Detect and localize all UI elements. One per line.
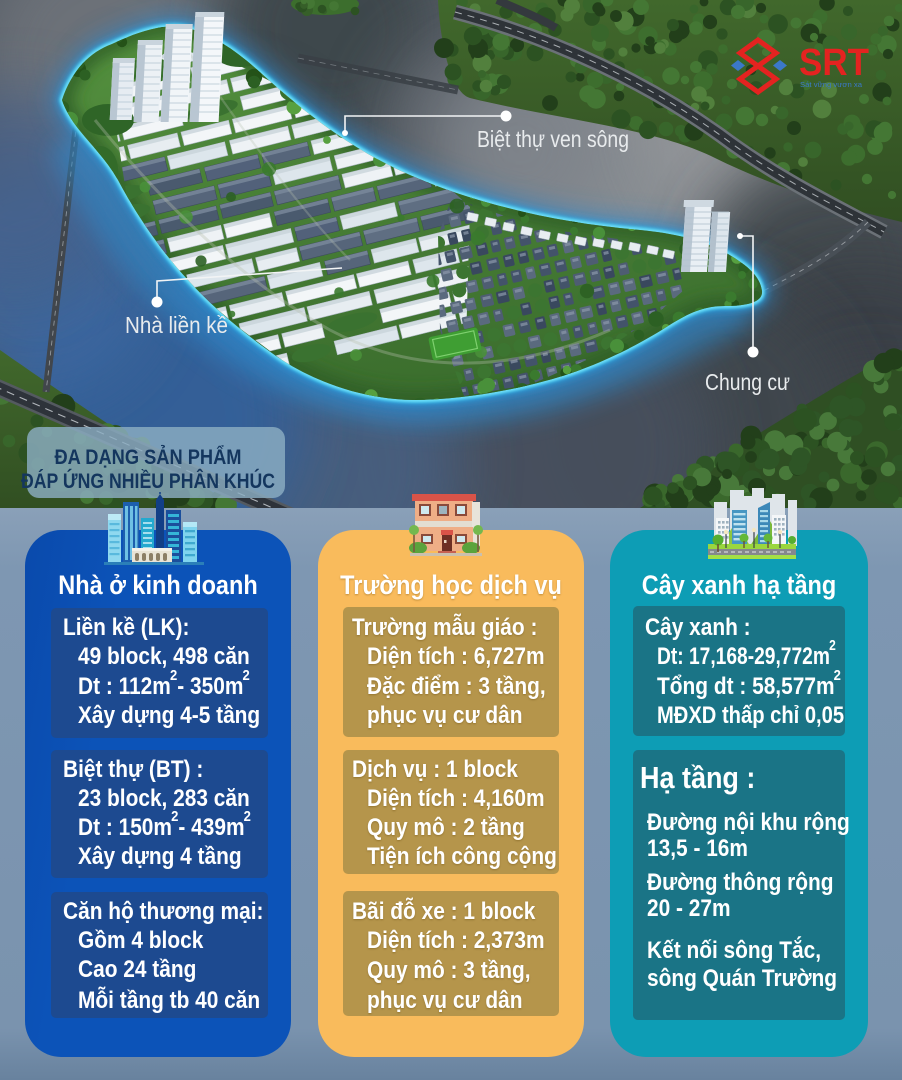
svg-text:ĐA DẠNG SẢN PHẨM: ĐA DẠNG SẢN PHẨM <box>55 446 242 469</box>
svg-text:ĐÁP ỨNG NHIỀU PHÂN KHÚC: ĐÁP ỨNG NHIỀU PHÂN KHÚC <box>21 469 275 493</box>
svg-text:SRT: SRT <box>799 42 869 84</box>
svg-text:Sát vững vươn xa: Sát vững vươn xa <box>800 80 863 89</box>
svg-text:Nhà liền kề: Nhà liền kề <box>125 312 228 338</box>
svg-text:Biệt thự ven sông: Biệt thự ven sông <box>477 126 629 152</box>
svg-text:Chung cư: Chung cư <box>705 369 790 395</box>
